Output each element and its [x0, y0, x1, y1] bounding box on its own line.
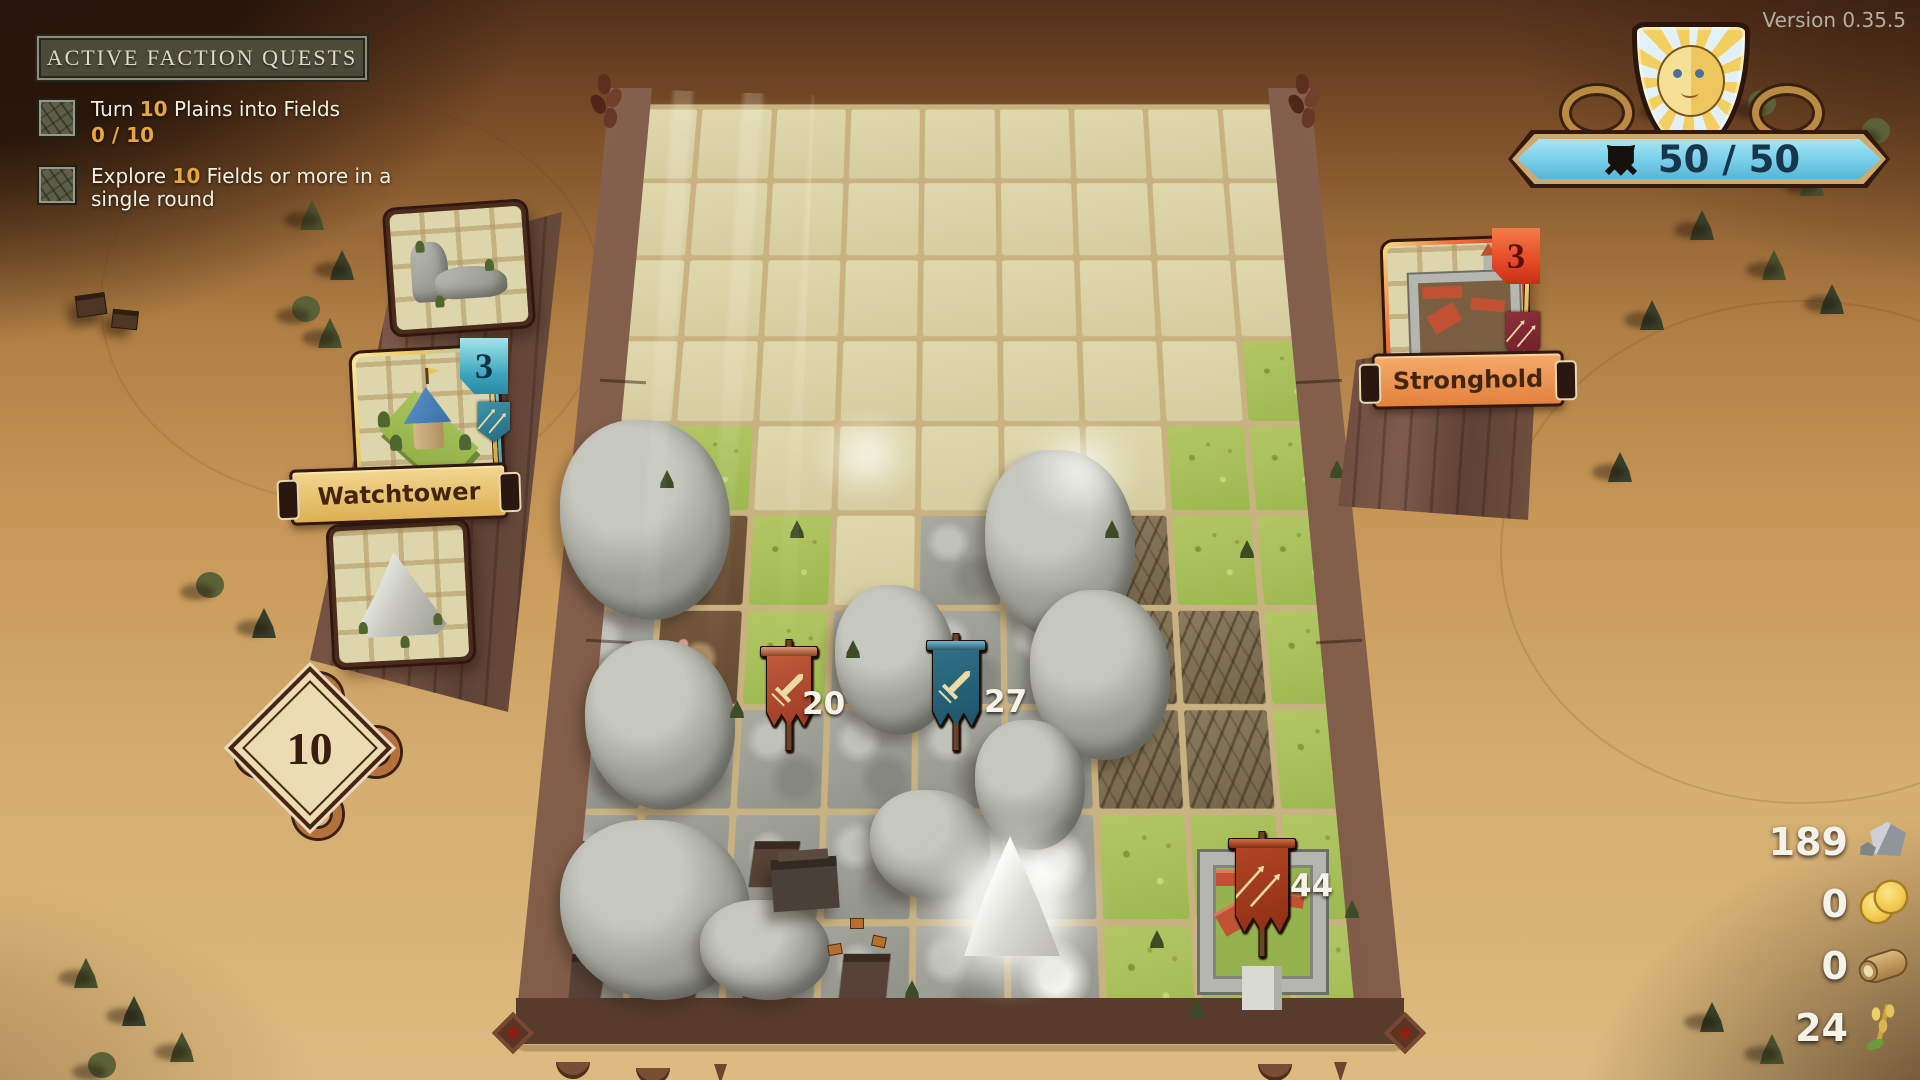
tile-deck-counter[interactable]: 10: [248, 686, 372, 810]
board-tile-plains[interactable]: [846, 183, 919, 255]
quest-panel-title: ACTIVE FACTION QUESTS: [37, 36, 367, 80]
resource-wheat: 24: [1769, 1004, 1910, 1052]
wood-value: 0: [1822, 944, 1848, 988]
stronghold-label: Stronghold: [1393, 365, 1544, 396]
board-tile-plains[interactable]: [1080, 260, 1157, 336]
sun-face-icon: [1657, 45, 1725, 117]
quest-panel: ACTIVE FACTION QUESTS Turn 10 Plains int…: [37, 36, 441, 211]
board-tile-plains[interactable]: [925, 109, 995, 178]
quest-checkbox-icon: [37, 98, 77, 138]
deck-count: 10: [287, 722, 333, 775]
mist: [806, 420, 926, 490]
stronghold-garrison-count: 44: [1290, 868, 1333, 904]
quest-text: Explore 10 Fields or more in a single ro…: [91, 165, 441, 211]
board-tile-plains[interactable]: [844, 260, 919, 336]
board-tile-plains[interactable]: [1157, 260, 1235, 336]
board-tile-rock-settlement[interactable]: [819, 926, 910, 1036]
board-tile-field[interactable]: [1273, 710, 1365, 808]
mist: [1010, 430, 1150, 510]
board-tile-plains[interactable]: [1000, 109, 1071, 178]
stone-icon: [1858, 818, 1910, 866]
watchtower-count-badge: 3: [460, 338, 508, 394]
watchtower-name-banner: Watchtower: [289, 462, 509, 526]
board-tile-plains[interactable]: [1002, 260, 1077, 336]
red-army-count: 20: [802, 686, 845, 722]
board-tile-plains[interactable]: [1229, 183, 1307, 255]
board-tile-field[interactable]: [1100, 815, 1190, 919]
stronghold-name-banner: Stronghold: [1372, 350, 1565, 409]
teal-army-count: 27: [984, 684, 1027, 720]
board-tile-field[interactable]: [1104, 926, 1197, 1036]
mountain-peak: [940, 830, 1090, 1000]
wheat-value: 24: [1795, 1006, 1848, 1050]
board-tile-plains[interactable]: [849, 109, 920, 178]
quest-item: Turn 10 Plains into Fields 0 / 10: [37, 98, 441, 147]
board-tile-field[interactable]: [1249, 427, 1334, 511]
resource-gold: 0: [1769, 880, 1910, 928]
stone-value: 189: [1769, 820, 1848, 864]
board-tile-plains[interactable]: [1148, 109, 1222, 178]
board-tile-plains[interactable]: [1077, 183, 1152, 255]
resource-wood: 0: [1769, 942, 1910, 990]
resource-panel: 189 0 0 24: [1769, 818, 1910, 1052]
stronghold-garrison-flag[interactable]: [1236, 848, 1288, 932]
board-tile-plains[interactable]: [841, 342, 918, 422]
game-screen: { "version_label": "Version 0.35.5", "qu…: [0, 0, 1920, 1080]
board-tile-plains[interactable]: [1001, 183, 1074, 255]
watchtower-label: Watchtower: [317, 477, 481, 511]
quest-text: Turn 10 Plains into Fields: [91, 98, 340, 121]
watchtower-faction-pennant: [478, 402, 510, 442]
quest-checkbox-icon: [37, 165, 77, 205]
gold-value: 0: [1822, 882, 1848, 926]
quest-progress: 0 / 10: [91, 123, 340, 147]
board-tile-field[interactable]: [1173, 516, 1258, 604]
settlement-house: [770, 856, 839, 912]
board-tile-plains[interactable]: [1153, 183, 1229, 255]
tray-card-rock-corner[interactable]: [385, 201, 533, 334]
board-tile-field[interactable]: [1256, 516, 1343, 604]
teal-army-flag[interactable]: [933, 650, 979, 726]
board-tile-plains[interactable]: [1162, 342, 1242, 422]
board-tile-wastes[interactable]: [1184, 710, 1274, 808]
board-tile-plains[interactable]: [921, 427, 999, 511]
board-tile-plains[interactable]: [1003, 342, 1080, 422]
faction-hud: 50 / 50: [1490, 10, 1910, 200]
gold-icon: [1858, 880, 1910, 928]
resource-stone: 189: [1769, 818, 1910, 866]
board-tile-wastes[interactable]: [1178, 611, 1265, 704]
board-tile-plains[interactable]: [1222, 109, 1298, 178]
board-tile-field[interactable]: [1242, 342, 1324, 422]
stronghold-count-badge: 3: [1492, 228, 1540, 284]
wood-icon: [1852, 935, 1916, 997]
board-tile-field[interactable]: [1167, 427, 1250, 511]
board-tile-plains[interactable]: [924, 183, 996, 255]
board-tile-plains[interactable]: [1235, 260, 1315, 336]
tray-card-mountain[interactable]: [328, 520, 473, 667]
wheat-icon: [1858, 1004, 1910, 1052]
quest-item: Explore 10 Fields or more in a single ro…: [37, 165, 441, 211]
board-tile-plains[interactable]: [923, 260, 997, 336]
strength-value: 50 / 50: [1658, 138, 1800, 181]
frame-ornament: [636, 1068, 670, 1080]
strength-readout: 50 / 50: [1508, 130, 1890, 188]
board-tile-field[interactable]: [1264, 611, 1354, 704]
board-tile-plains[interactable]: [1082, 342, 1161, 422]
board-tile-plains[interactable]: [922, 342, 998, 422]
board-tile-plains[interactable]: [1074, 109, 1147, 178]
shield-swords-icon: [1598, 136, 1644, 182]
